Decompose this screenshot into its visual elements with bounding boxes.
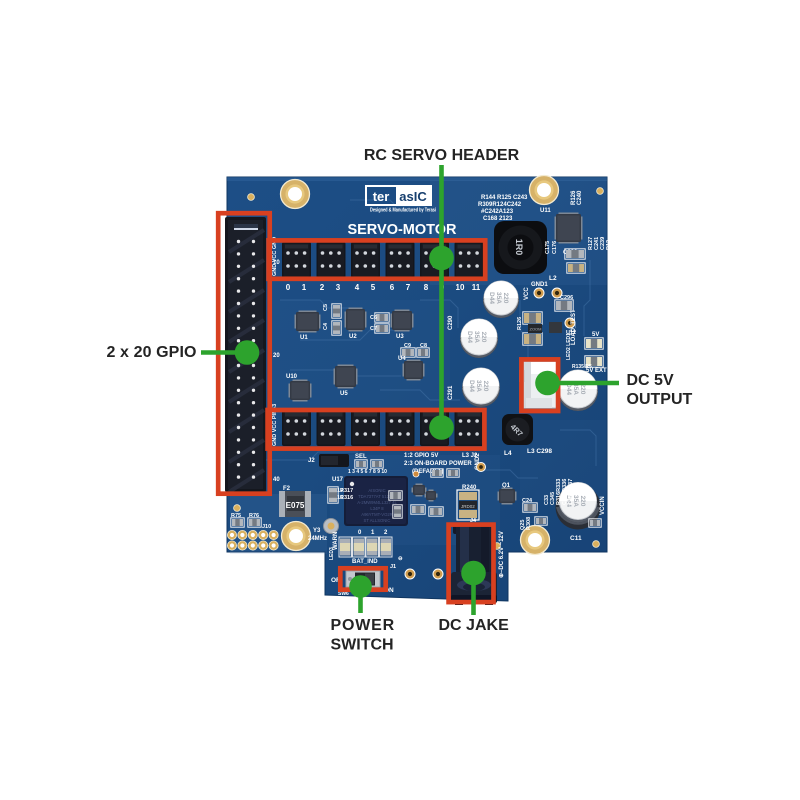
svg-text:SWITCH: SWITCH [331, 637, 394, 654]
svg-text:2 x 20 GPIO: 2 x 20 GPIO [107, 344, 197, 361]
svg-text:U1: U1 [300, 335, 308, 341]
svg-text:1 3 4 5 6 7 8 9 10: 1 3 4 5 6 7 8 9 10 [348, 469, 387, 475]
svg-text:C331C337: C331C337 [568, 479, 574, 505]
svg-text:J16: J16 [220, 511, 226, 520]
svg-text:C24: C24 [522, 498, 533, 504]
svg-text:5V: 5V [592, 332, 599, 338]
svg-text:R126: R126 [517, 317, 523, 330]
svg-text:1R0: 1R0 [514, 239, 524, 256]
svg-text:R308: R308 [526, 517, 532, 530]
svg-text:LED2 LED1: LED2 LED1 [566, 333, 572, 360]
svg-text:R309R124C242: R309R124C242 [478, 202, 522, 208]
svg-text:#C242A123: #C242A123 [481, 209, 514, 215]
svg-text:Y3: Y3 [313, 528, 321, 534]
svg-text:J2: J2 [308, 458, 315, 464]
svg-text:C296: C296 [560, 295, 573, 301]
svg-text:2: 2 [320, 283, 325, 292]
svg-text:Designed & Manufactured by Ter: Designed & Manufactured by Terasi [370, 208, 436, 214]
svg-text:RC SERVO HEADER: RC SERVO HEADER [364, 147, 520, 164]
svg-text:4: 4 [355, 283, 360, 292]
svg-text:VCCIN: VCCIN [600, 496, 606, 515]
svg-text:⊕–DC 6.2V ~12V: ⊕–DC 6.2V ~12V [499, 531, 505, 578]
svg-text:U17: U17 [332, 477, 344, 483]
svg-text:⊖: ⊖ [398, 556, 403, 562]
svg-text:C9: C9 [404, 343, 411, 349]
svg-text:24MHz: 24MHz [308, 536, 327, 542]
svg-text:A96YTMT-VO2R: A96YTMT-VO2R [361, 512, 392, 517]
svg-text:D44: D44 [488, 292, 495, 304]
svg-text:R75: R75 [231, 513, 241, 519]
svg-text:U10: U10 [286, 374, 298, 380]
svg-text:3: 3 [336, 283, 341, 292]
svg-text:40: 40 [273, 477, 280, 483]
svg-text:C11: C11 [570, 535, 582, 542]
svg-text:U2: U2 [349, 334, 357, 340]
svg-text:R135 R5: R135 R5 [572, 364, 592, 370]
svg-text:35A: 35A [475, 380, 482, 392]
svg-text:C7: C7 [370, 326, 377, 332]
svg-text:1: 1 [302, 283, 307, 292]
svg-text:C5: C5 [323, 304, 329, 311]
svg-text:ZOOM: ZOOM [530, 327, 542, 332]
svg-text:DC 5V: DC 5V [627, 372, 674, 389]
svg-text:asIC: asIC [399, 189, 427, 204]
svg-text:11: 11 [472, 283, 481, 292]
svg-text:35A: 35A [473, 331, 480, 343]
svg-text:8: 8 [424, 283, 429, 292]
svg-text:C8: C8 [420, 343, 427, 349]
svg-text:U11: U11 [540, 208, 551, 214]
svg-text:R76: R76 [249, 513, 259, 519]
svg-text:J10: J10 [262, 524, 271, 530]
svg-text:220: 220 [579, 496, 586, 507]
svg-text:220: 220 [482, 381, 489, 392]
svg-text:ter: ter [373, 189, 390, 204]
svg-text:6: 6 [390, 283, 395, 292]
svg-text:BAT_IND: BAT_IND [352, 559, 378, 565]
svg-text:R73: R73 [214, 499, 220, 508]
svg-text:5: 5 [371, 283, 376, 292]
svg-text:R12: R12 [606, 240, 612, 250]
svg-text:POWER: POWER [331, 617, 395, 634]
svg-text:7: 7 [406, 283, 411, 292]
svg-text:DC JAKE: DC JAKE [439, 617, 510, 634]
svg-text:2:3 ON-BOARD POWER: 2:3 ON-BOARD POWER [404, 461, 472, 467]
svg-text:L4: L4 [504, 450, 512, 457]
svg-text:D44: D44 [468, 380, 475, 392]
svg-text:220: 220 [480, 332, 487, 343]
svg-text:C175: C175 [545, 241, 551, 254]
svg-text:U3: U3 [396, 334, 404, 340]
svg-text:R316: R316 [340, 495, 353, 501]
svg-text:L34P 8: L34P 8 [370, 506, 384, 511]
svg-text:JRD02: JRD02 [461, 504, 475, 509]
svg-text:C6: C6 [370, 315, 377, 321]
svg-text:C240: C240 [577, 190, 583, 205]
svg-text:R317: R317 [340, 488, 353, 494]
svg-text:20: 20 [273, 353, 280, 359]
svg-text:35A: 35A [495, 292, 502, 304]
svg-text:L3 C298: L3 C298 [527, 448, 552, 455]
svg-text:AISONIC: AISONIC [368, 488, 385, 493]
svg-text:0: 0 [286, 283, 291, 292]
svg-text:R144 R125 C243: R144 R125 C243 [481, 195, 528, 201]
svg-text:SEL: SEL [355, 454, 367, 460]
svg-text:L2: L2 [549, 275, 557, 282]
svg-text:C290: C290 [448, 315, 454, 330]
svg-text:LED3: LED3 [329, 547, 335, 560]
svg-text:VCC: VCC [524, 287, 530, 300]
svg-text:1:2 GPIO 5V: 1:2 GPIO 5V [404, 453, 438, 459]
svg-text:U5: U5 [340, 391, 348, 397]
svg-text:A-2MW9M4LL327 4L: A-2MW9M4LL327 4L [357, 500, 397, 505]
svg-text:OUTPUT: OUTPUT [627, 391, 693, 408]
svg-text:E075: E075 [286, 501, 305, 510]
svg-text:J1: J1 [390, 564, 396, 570]
svg-text:220: 220 [502, 293, 509, 304]
svg-text:ST ALLSONIC: ST ALLSONIC [364, 518, 391, 523]
svg-text:C4: C4 [323, 322, 329, 330]
svg-text:10: 10 [456, 283, 465, 292]
svg-text:GND1: GND1 [531, 282, 548, 288]
svg-text:C176: C176 [552, 241, 558, 254]
svg-text:C291: C291 [448, 385, 454, 400]
svg-text:D44: D44 [466, 331, 473, 343]
